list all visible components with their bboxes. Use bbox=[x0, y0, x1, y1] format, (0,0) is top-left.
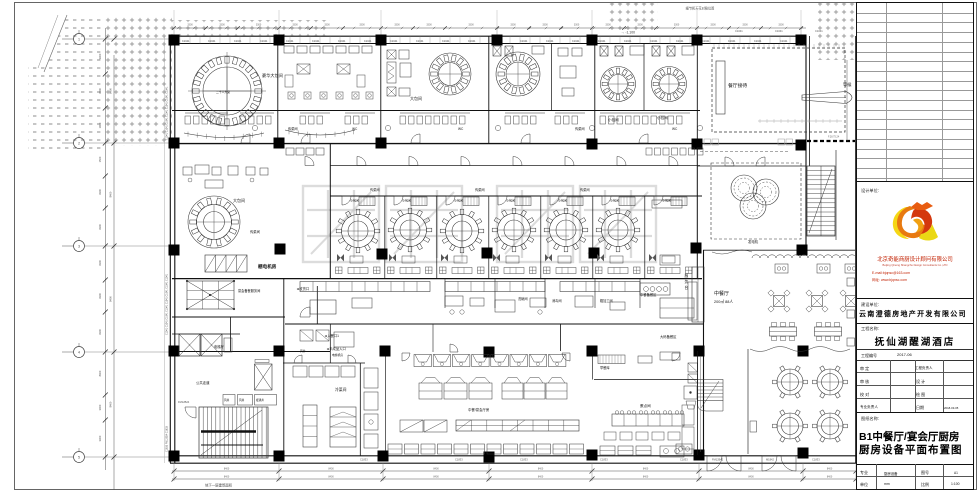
svg-text:C1041: C1041 bbox=[572, 40, 580, 43]
svg-text:C1833: C1833 bbox=[680, 458, 688, 462]
svg-text:等候: 等候 bbox=[843, 81, 852, 88]
svg-text:C1833: C1833 bbox=[600, 458, 608, 462]
svg-text:8400: 8400 bbox=[538, 476, 544, 479]
svg-text:3300: 3300 bbox=[98, 224, 102, 230]
svg-text:8400: 8400 bbox=[108, 88, 112, 94]
svg-text:200㎡ 88人: 200㎡ 88人 bbox=[714, 299, 733, 304]
svg-text:3300: 3300 bbox=[468, 24, 474, 27]
svg-text:C1041: C1041 bbox=[775, 29, 783, 33]
svg-text:发电机: 发电机 bbox=[748, 239, 759, 244]
svg-text:8400: 8400 bbox=[108, 191, 112, 197]
svg-text:大包间: 大包间 bbox=[410, 95, 422, 101]
svg-text:消毒间: 消毒间 bbox=[552, 298, 562, 303]
svg-text:C1041: C1041 bbox=[468, 40, 476, 43]
svg-text:◄入餐口1: ◄入餐口1 bbox=[324, 333, 339, 338]
svg-text:C1041: C1041 bbox=[312, 40, 320, 43]
svg-text:风井: 风井 bbox=[300, 349, 306, 353]
svg-text:C1041: C1041 bbox=[390, 40, 398, 43]
svg-text:3300: 3300 bbox=[292, 24, 298, 27]
svg-text:小包间: 小包间 bbox=[506, 198, 515, 203]
svg-text:风井: 风井 bbox=[239, 398, 245, 402]
svg-text:宴会备餐服务间: 宴会备餐服务间 bbox=[238, 288, 260, 293]
svg-text:C1041: C1041 bbox=[234, 40, 242, 43]
svg-text:8400: 8400 bbox=[224, 468, 230, 471]
svg-text:C1041 C1041 C1041 C1041 C1041: C1041 C1041 C1041 C1041 C1041 C1041 C104… bbox=[166, 273, 169, 335]
svg-text:8400: 8400 bbox=[748, 476, 754, 479]
svg-text:传菜间: 传菜间 bbox=[250, 229, 260, 234]
svg-text:8400: 8400 bbox=[98, 370, 102, 376]
svg-text:8400: 8400 bbox=[433, 468, 439, 471]
svg-text:棚电机房: 棚电机房 bbox=[258, 263, 277, 270]
svg-text:电梯厅: 电梯厅 bbox=[214, 344, 225, 349]
svg-text:二十人大桌: 二十人大桌 bbox=[216, 90, 230, 94]
svg-text:大包间: 大包间 bbox=[233, 197, 245, 203]
svg-text:3300: 3300 bbox=[187, 24, 193, 27]
svg-text:小包间: 小包间 bbox=[610, 198, 619, 203]
svg-text:3000: 3000 bbox=[98, 404, 102, 410]
svg-text:3300: 3300 bbox=[637, 24, 643, 27]
svg-text:3300: 3300 bbox=[98, 435, 102, 441]
svg-text:8400: 8400 bbox=[748, 468, 754, 471]
svg-text:8400: 8400 bbox=[328, 468, 334, 471]
svg-text:风井: 风井 bbox=[224, 398, 230, 402]
svg-text:中餐厅: 中餐厅 bbox=[714, 290, 729, 297]
svg-text:C1041: C1041 bbox=[260, 40, 268, 43]
svg-text:5: 5 bbox=[78, 456, 80, 460]
svg-text:8400: 8400 bbox=[538, 468, 544, 471]
svg-text:传菜间: 传菜间 bbox=[288, 126, 298, 131]
svg-text:粗加工间: 粗加工间 bbox=[600, 298, 613, 303]
svg-text:大码备餐区: 大码备餐区 bbox=[660, 334, 677, 339]
svg-text:8400: 8400 bbox=[108, 296, 112, 302]
svg-text:C1041: C1041 bbox=[182, 40, 190, 43]
svg-text:C1041: C1041 bbox=[754, 40, 762, 43]
svg-text:蛋点间: 蛋点间 bbox=[640, 403, 651, 408]
svg-text:8400: 8400 bbox=[827, 468, 833, 471]
svg-text:早餐库: 早餐库 bbox=[600, 365, 610, 370]
svg-text:8400: 8400 bbox=[328, 476, 334, 479]
svg-text:3300: 3300 bbox=[542, 24, 548, 27]
svg-text:电梯机房: 电梯机房 bbox=[332, 353, 343, 357]
svg-text:冷菜间: 冷菜间 bbox=[335, 387, 347, 392]
svg-text:传菜间: 传菜间 bbox=[475, 187, 485, 192]
svg-text:3300: 3300 bbox=[98, 329, 102, 335]
svg-text:3300: 3300 bbox=[674, 24, 680, 27]
svg-text:3300: 3300 bbox=[98, 88, 102, 94]
svg-text:3300: 3300 bbox=[710, 24, 716, 27]
svg-text:传菜间: 传菜间 bbox=[580, 187, 590, 192]
svg-text:台: 台 bbox=[685, 285, 689, 290]
svg-text:C1041: C1041 bbox=[728, 40, 736, 43]
svg-text:3300: 3300 bbox=[605, 24, 611, 27]
svg-text:细节和天花对稳位置: 细节和天花对稳位置 bbox=[686, 6, 715, 11]
svg-text:◄收货口: ◄收货口 bbox=[296, 286, 309, 291]
svg-text:8400: 8400 bbox=[643, 476, 649, 479]
svg-text:豪华大包间: 豪华大包间 bbox=[262, 72, 283, 79]
svg-text:3300: 3300 bbox=[394, 24, 400, 27]
svg-text:3300: 3300 bbox=[778, 24, 784, 27]
svg-text:务: 务 bbox=[685, 279, 689, 284]
svg-text:3300: 3300 bbox=[98, 53, 102, 59]
svg-text:C1041: C1041 bbox=[598, 40, 606, 43]
svg-text:C1833: C1833 bbox=[520, 458, 528, 462]
svg-text:C1041 C1041 C1041 C1041 C1041: C1041 C1041 C1041 C1041 C1041 C1041 C104… bbox=[166, 86, 169, 140]
svg-text:小包间: 小包间 bbox=[608, 117, 619, 122]
svg-text:C1041: C1041 bbox=[208, 40, 216, 43]
svg-text:3300: 3300 bbox=[98, 189, 102, 195]
svg-text:8400: 8400 bbox=[108, 401, 112, 407]
svg-text:C1041: C1041 bbox=[624, 40, 632, 43]
svg-text:8400: 8400 bbox=[643, 468, 649, 471]
svg-text:C1041: C1041 bbox=[815, 29, 823, 33]
svg-text:C1041: C1041 bbox=[520, 40, 528, 43]
svg-text:WC: WC bbox=[352, 127, 358, 131]
svg-text:WC: WC bbox=[458, 127, 464, 131]
svg-text:1900: 1900 bbox=[98, 122, 102, 128]
svg-text:C1833: C1833 bbox=[812, 458, 820, 462]
svg-text:3300: 3300 bbox=[324, 24, 330, 27]
svg-text:3: 3 bbox=[78, 245, 80, 249]
svg-text:8400: 8400 bbox=[224, 476, 230, 479]
svg-text:C1041: C1041 bbox=[442, 40, 450, 43]
svg-text:4: 4 bbox=[78, 351, 80, 355]
svg-text:服: 服 bbox=[685, 273, 689, 278]
svg-text:小包间: 小包间 bbox=[350, 198, 359, 203]
svg-text:8400: 8400 bbox=[433, 476, 439, 479]
svg-text:3300: 3300 bbox=[426, 24, 432, 27]
svg-text:WC: WC bbox=[672, 127, 678, 131]
svg-text:C1041: C1041 bbox=[650, 40, 658, 43]
svg-text:3300: 3300 bbox=[574, 24, 580, 27]
svg-text:→ -1.100: → -1.100 bbox=[621, 31, 635, 35]
svg-text:C1041: C1041 bbox=[364, 40, 372, 43]
svg-text:3300: 3300 bbox=[98, 293, 102, 299]
svg-text:C1041: C1041 bbox=[735, 29, 743, 33]
svg-text:3300: 3300 bbox=[256, 24, 262, 27]
svg-text:3300: 3300 bbox=[742, 24, 748, 27]
svg-text:2: 2 bbox=[78, 142, 80, 146]
svg-text:地下一层建筑面积: 地下一层建筑面积 bbox=[205, 483, 233, 488]
svg-text:C1833: C1833 bbox=[360, 458, 368, 462]
svg-text:洗碗间: 洗碗间 bbox=[518, 296, 528, 301]
svg-text:8400: 8400 bbox=[827, 476, 833, 479]
svg-text:C1041: C1041 bbox=[338, 40, 346, 43]
svg-text:C1041: C1041 bbox=[780, 40, 788, 43]
svg-text:3300: 3300 bbox=[98, 260, 102, 266]
svg-text:餐厅接待: 餐厅接待 bbox=[728, 82, 747, 89]
svg-text:小包间: 小包间 bbox=[558, 198, 567, 203]
svg-text:小包间: 小包间 bbox=[454, 198, 463, 203]
svg-text:1: 1 bbox=[78, 38, 80, 42]
svg-text:C1041: C1041 bbox=[702, 40, 710, 43]
svg-text:M1842: M1842 bbox=[766, 458, 774, 462]
svg-text:3300: 3300 bbox=[219, 24, 225, 27]
svg-text:传菜间: 传菜间 bbox=[575, 126, 585, 131]
svg-text:FM12B42: FM12B42 bbox=[712, 458, 724, 462]
svg-text:小包间: 小包间 bbox=[657, 115, 668, 120]
svg-text:小包间: 小包间 bbox=[402, 198, 411, 203]
svg-text:FM12B24: FM12B24 bbox=[178, 400, 190, 404]
svg-text:C1833: C1833 bbox=[455, 458, 463, 462]
svg-text:暖通井: 暖通井 bbox=[256, 398, 264, 402]
svg-text:1500: 1500 bbox=[98, 156, 102, 162]
svg-text:3300: 3300 bbox=[359, 24, 365, 27]
svg-text:传菜间: 传菜间 bbox=[370, 187, 380, 192]
svg-text:中餐/宴会厅房: 中餐/宴会厅房 bbox=[468, 407, 490, 412]
svg-text:公共走道: 公共走道 bbox=[196, 380, 210, 385]
svg-text:C1833 FM12B24 C1833: C1833 FM12B24 C1833 bbox=[166, 426, 169, 452]
svg-text:F.28.75.24: F.28.75.24 bbox=[828, 136, 840, 139]
svg-text:3300: 3300 bbox=[510, 24, 516, 27]
svg-text:中餐备餐区: 中餐备餐区 bbox=[640, 292, 657, 297]
